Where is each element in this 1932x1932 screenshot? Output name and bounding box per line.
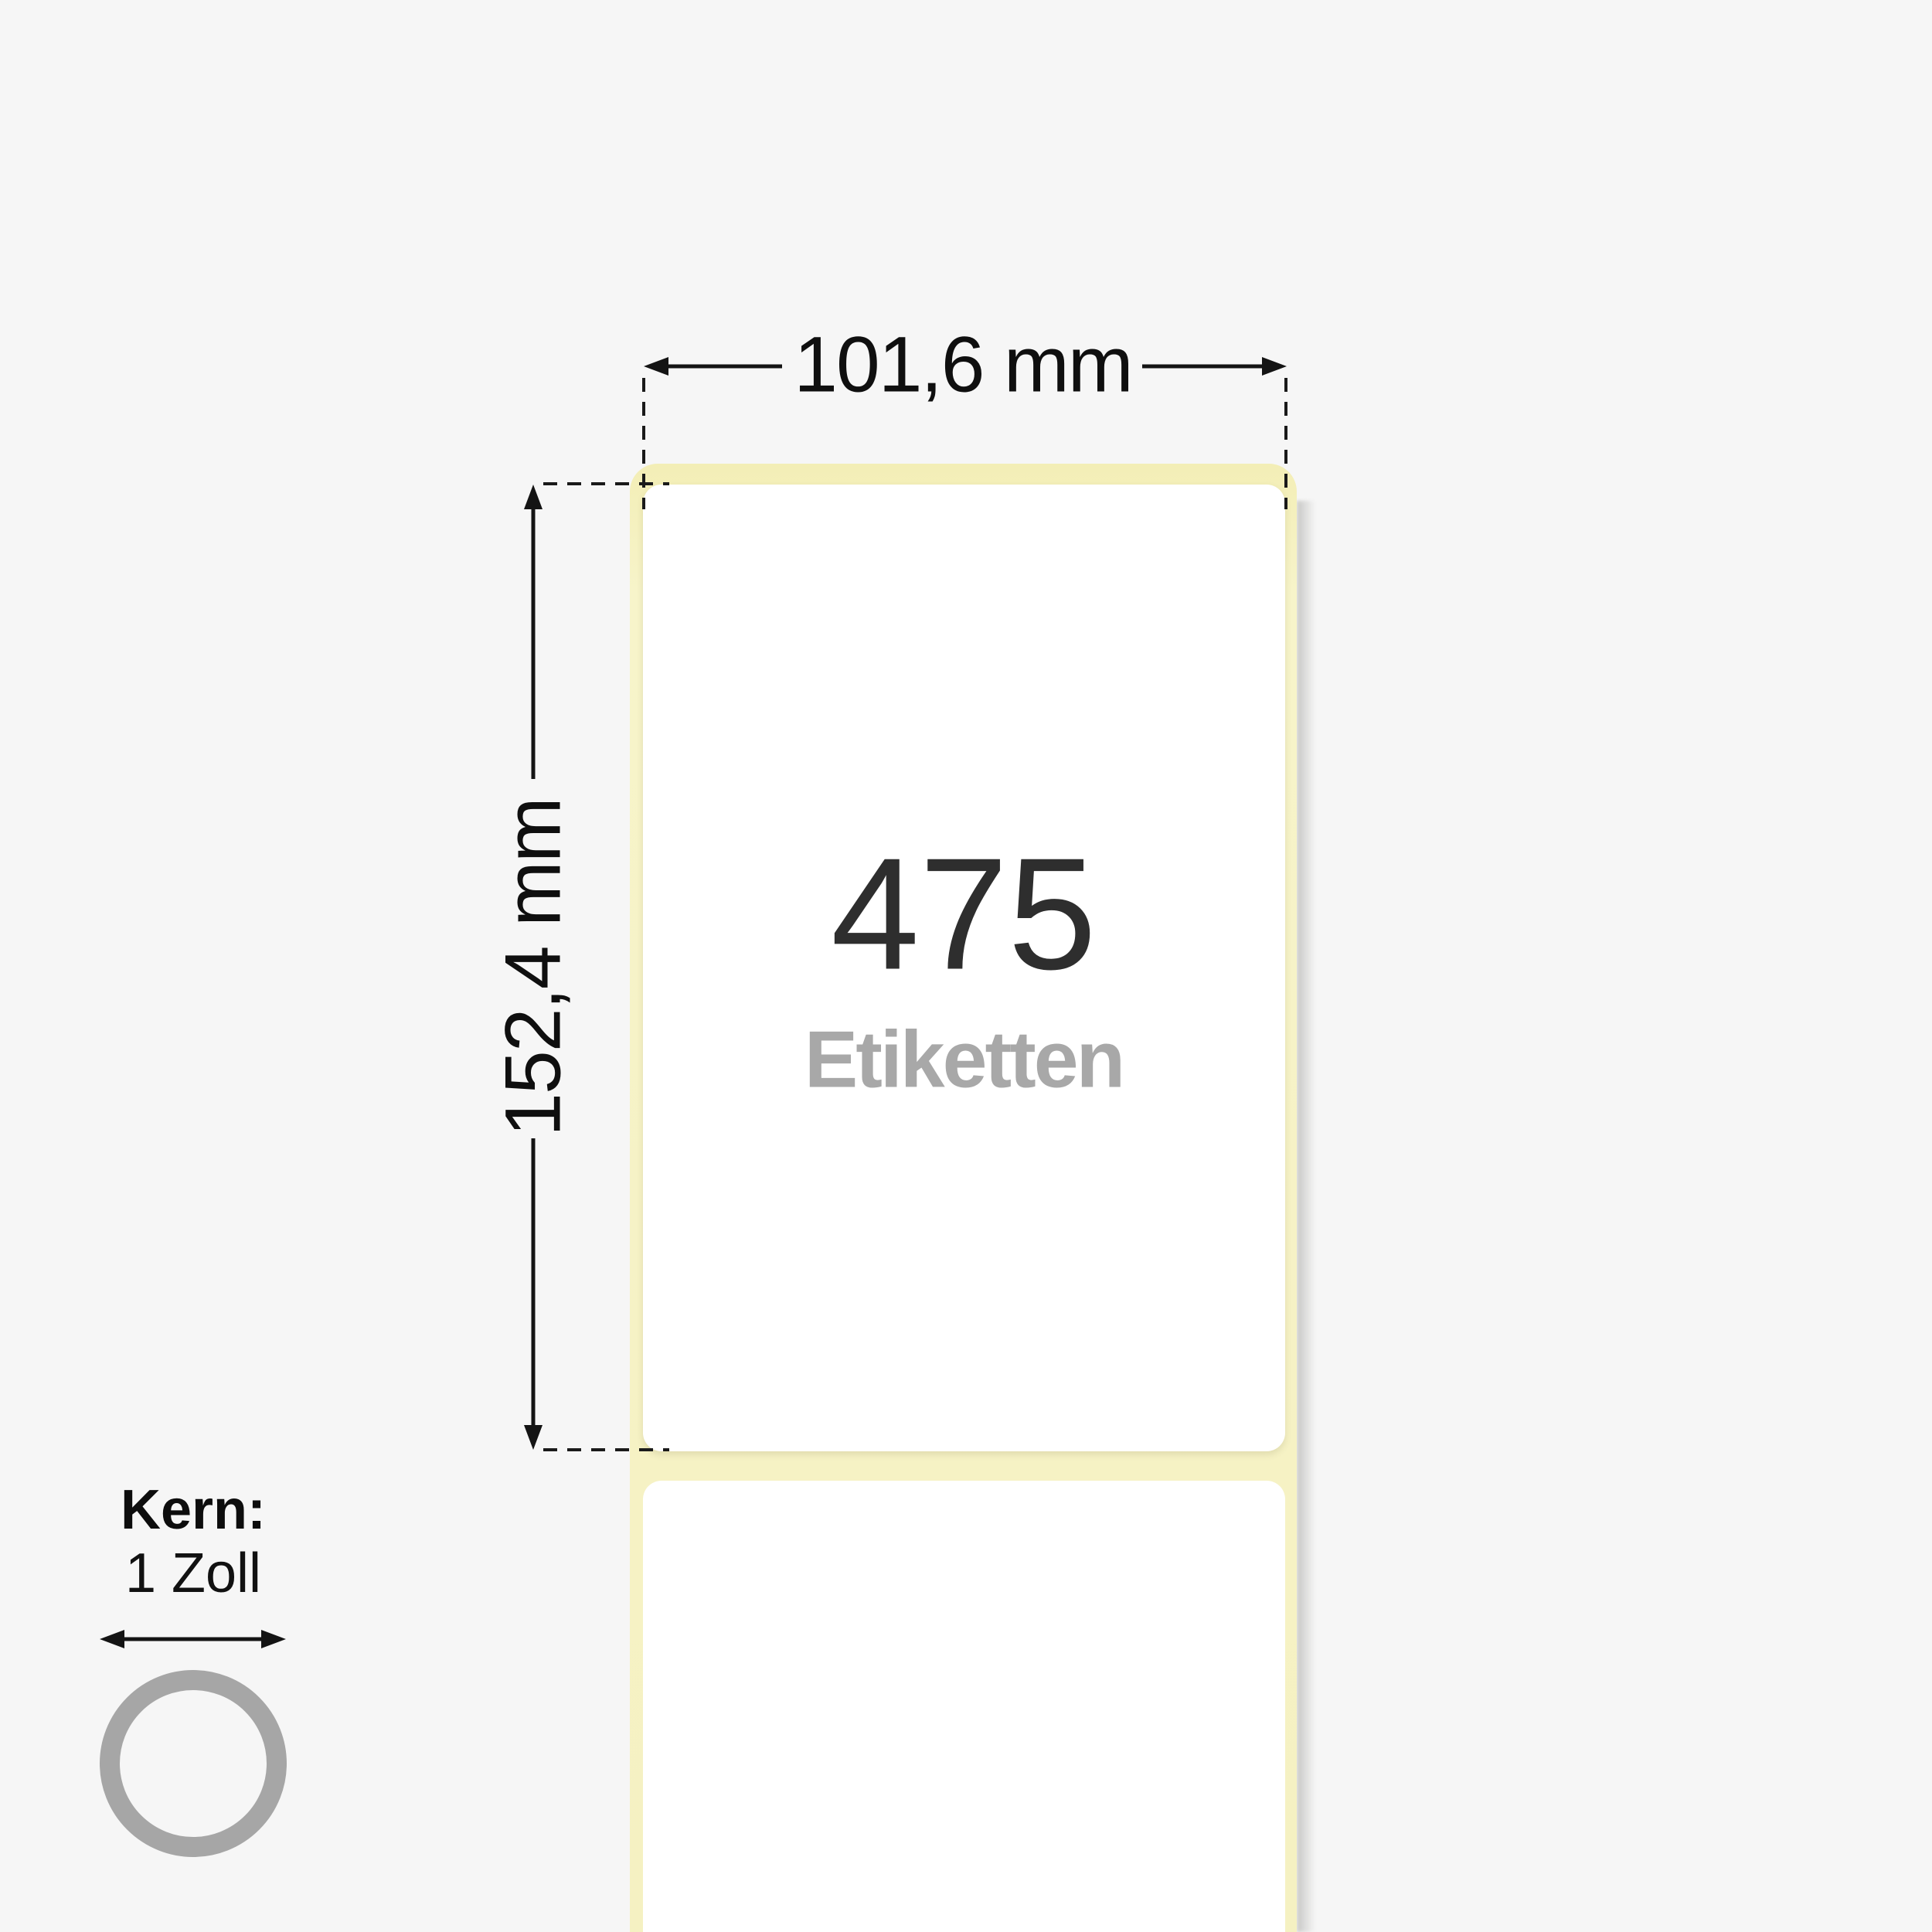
height-arrow-down-icon <box>524 1425 543 1450</box>
core-ring-icon <box>110 1680 277 1847</box>
product-image-canvas: 101,6 mm 152,4 mm 475 Etiketten Kern: 1 … <box>0 0 1932 1932</box>
label-second <box>643 1481 1285 1932</box>
core-dimension <box>100 1630 286 1847</box>
label-count-value: 475 <box>831 823 1097 1006</box>
roll-right-shadow <box>1297 501 1315 1932</box>
height-dimension-label: 152,4 mm <box>488 798 579 1137</box>
width-arrow-left-icon <box>644 357 668 376</box>
core-arrow-left-icon <box>100 1630 124 1648</box>
label-count-unit: Etiketten <box>804 1015 1123 1107</box>
height-arrow-up-icon <box>524 485 543 509</box>
width-dimension-label: 101,6 mm <box>794 320 1132 410</box>
core-title: Kern: <box>121 1478 266 1542</box>
core-arrow-right-icon <box>261 1630 286 1648</box>
core-value: 1 Zoll <box>125 1542 261 1605</box>
width-arrow-right-icon <box>1262 357 1287 376</box>
